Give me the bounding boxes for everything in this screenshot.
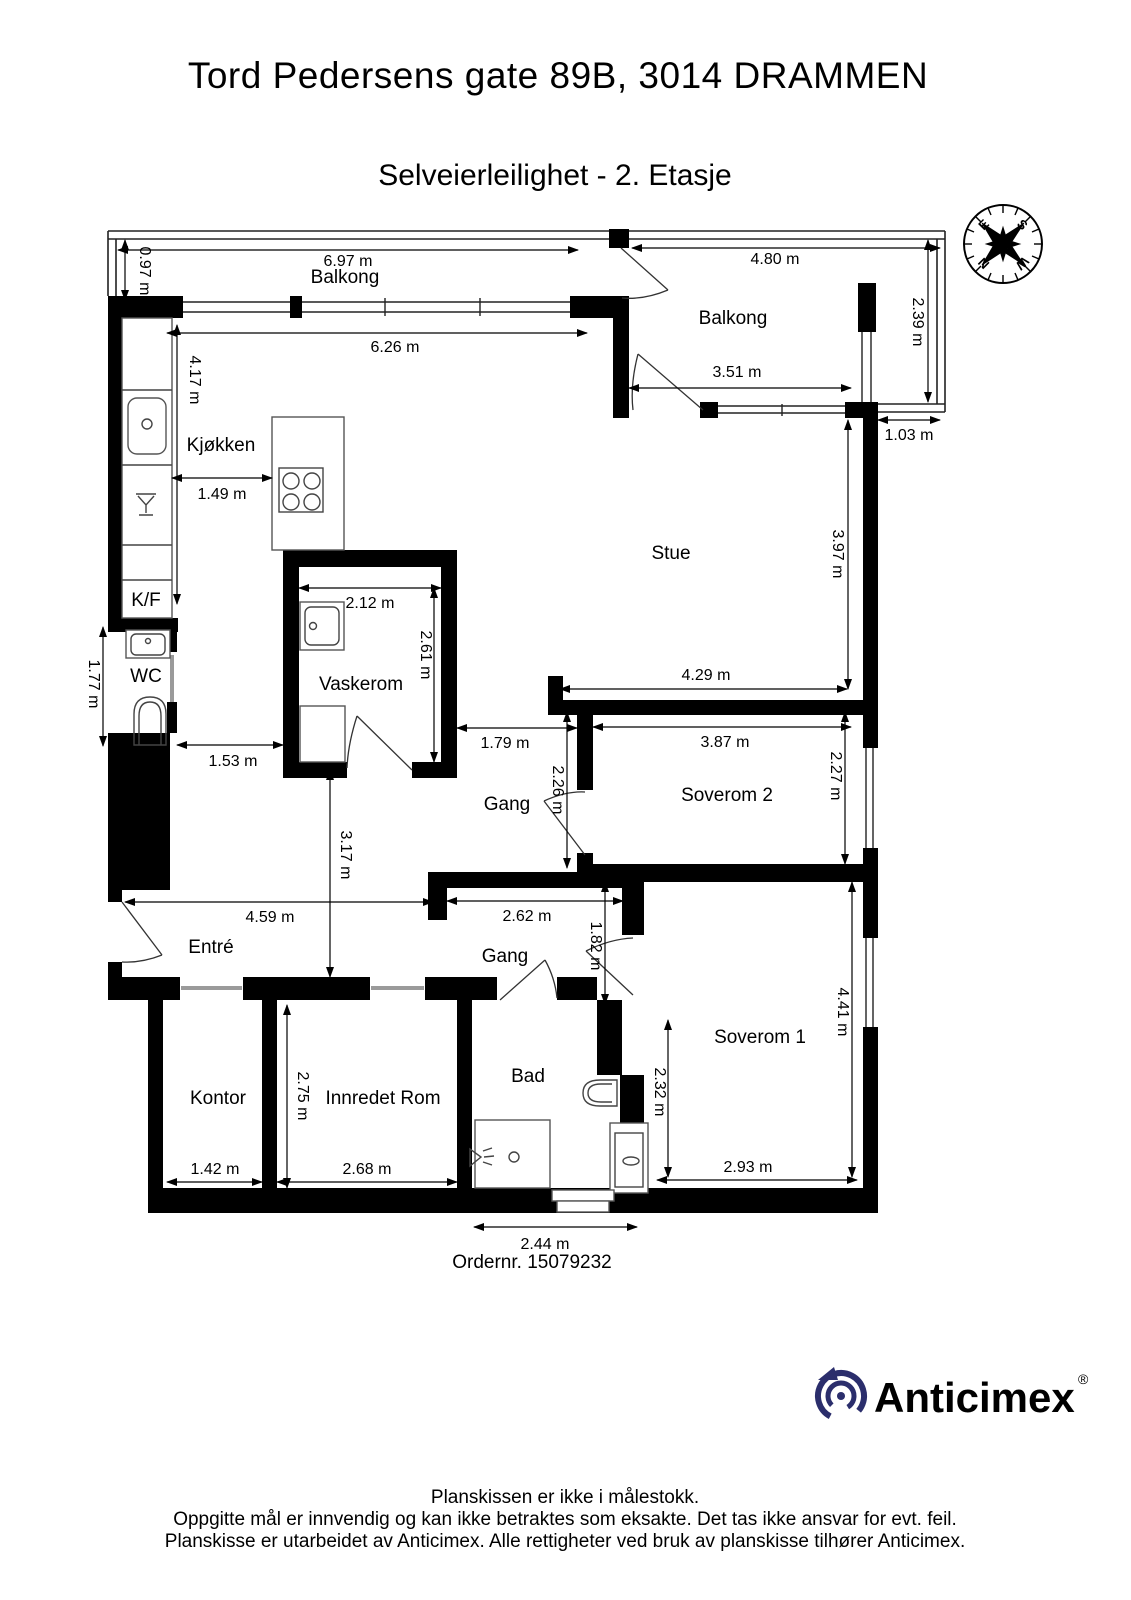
- dim-balkong-right-side: 1.03 m: [878, 420, 940, 444]
- svg-text:1.42 m: 1.42 m: [191, 1161, 240, 1178]
- wall-segment: [858, 283, 876, 332]
- svg-text:2.26 m: 2.26 m: [549, 766, 566, 815]
- room-label-entre: Entré: [188, 937, 233, 958]
- svg-text:2.62 m: 2.62 m: [503, 908, 552, 925]
- svg-text:2.27 m: 2.27 m: [827, 752, 844, 801]
- wall-segment: [622, 882, 644, 935]
- svg-text:2.12 m: 2.12 m: [346, 595, 395, 612]
- wall-segment: [290, 296, 302, 318]
- room-label-gang1: Gang: [484, 794, 530, 815]
- dim-innredet-height: 2.75 m: [287, 1005, 311, 1188]
- wall-segment: [243, 977, 370, 1000]
- room-label-stue: Stue: [651, 543, 690, 564]
- room-label-kontor: Kontor: [190, 1088, 247, 1109]
- dim-vaskerom-height: 2.61 m: [417, 588, 434, 762]
- compass-icon: E S W N: [964, 205, 1042, 283]
- washing-machine-icon: [300, 706, 345, 762]
- svg-text:4.17 m: 4.17 m: [186, 356, 203, 405]
- footer-line2: Oppgitte mål er innvendig og kan ikke be…: [173, 1509, 957, 1530]
- svg-text:2.68 m: 2.68 m: [343, 1161, 392, 1178]
- wall-segment: [593, 864, 863, 882]
- floorplan-page: Tord Pedersens gate 89B, 3014 DRAMMEN Se…: [0, 0, 1131, 1600]
- wall-segment: [863, 1027, 878, 1190]
- wall-segment: [557, 977, 597, 1000]
- svg-text:4.41 m: 4.41 m: [834, 988, 851, 1037]
- svg-text:4.29 m: 4.29 m: [682, 667, 731, 684]
- wall-segment: [613, 296, 629, 418]
- registered-mark: ®: [1078, 1371, 1089, 1387]
- svg-text:1.77 m: 1.77 m: [85, 660, 102, 709]
- svg-text:1.79 m: 1.79 m: [481, 735, 530, 752]
- svg-text:1.03 m: 1.03 m: [885, 427, 934, 444]
- dim-balkong-left-depth: 0.97 m: [125, 240, 153, 300]
- svg-text:4.80 m: 4.80 m: [751, 251, 800, 268]
- wall-segment: [570, 296, 616, 318]
- entrance-step: [552, 1190, 614, 1201]
- dim-stue-width: 4.29 m: [560, 667, 847, 689]
- svg-text:3.87 m: 3.87 m: [701, 734, 750, 751]
- wall-segment: [283, 550, 457, 567]
- dim-wc-height: 1.77 m: [85, 627, 103, 746]
- room-label-vaskerom: Vaskerom: [319, 674, 403, 695]
- wall-segment: [108, 296, 122, 618]
- wall-segment: [863, 402, 878, 748]
- order-number: Ordernr. 15079232: [452, 1252, 612, 1273]
- room-label-balkong-right: Balkong: [699, 308, 768, 329]
- wall-segment: [283, 762, 347, 778]
- wall-segment: [441, 550, 457, 763]
- shower-icon: [475, 1120, 550, 1188]
- balcony-divider-door: [621, 248, 668, 298]
- wall-segment: [108, 890, 122, 902]
- entrance-step: [557, 1201, 609, 1212]
- svg-text:2.75 m: 2.75 m: [294, 1072, 311, 1121]
- room-label-innredet-rom: Innredet Rom: [325, 1088, 440, 1109]
- room-label-kf: K/F: [131, 590, 161, 611]
- dim-innredet-width: 2.68 m: [277, 1161, 457, 1182]
- page-title: Tord Pedersens gate 89B, 3014 DRAMMEN: [188, 55, 928, 96]
- wall-segment: [262, 1000, 277, 1188]
- svg-text:3.97 m: 3.97 m: [829, 530, 846, 579]
- page-subtitle: Selveierleilighet - 2. Etasje: [378, 159, 732, 192]
- wall-segment: [447, 977, 497, 1000]
- wall-segment: [548, 700, 878, 715]
- svg-text:3.51 m: 3.51 m: [713, 364, 762, 381]
- wall-segment: [148, 1188, 878, 1213]
- dim-soverom2-width: 3.87 m: [593, 727, 851, 751]
- dim-soverom1-width: 2.93 m: [657, 1159, 857, 1180]
- wall-segment: [548, 676, 563, 700]
- dim-wc-gap: 1.53 m: [177, 745, 283, 770]
- svg-text:2.39 m: 2.39 m: [909, 298, 926, 347]
- room-label-balkong-left: Balkong: [311, 267, 380, 288]
- dim-gang1-height: 2.26 m: [549, 712, 567, 868]
- svg-text:1.82 m: 1.82 m: [587, 922, 604, 971]
- room-label-bad: Bad: [511, 1066, 545, 1087]
- dim-soverom2-height: 2.27 m: [827, 712, 845, 864]
- balcony-stue-door: [632, 354, 703, 410]
- dim-soverom1-inner-height: 2.32 m: [651, 1020, 668, 1177]
- balcony-railings: [108, 231, 945, 412]
- wall-segment: [108, 733, 170, 890]
- wall-segment: [425, 977, 447, 1000]
- dim-balkong-right-depth: 2.39 m: [909, 240, 928, 402]
- wall-segment: [108, 962, 122, 977]
- anticimex-logo: Anticimex ®: [810, 1365, 1089, 1427]
- room-label-soverom1: Soverom 1: [714, 1027, 806, 1048]
- dim-stue-height: 3.97 m: [829, 420, 848, 689]
- dim-balkong-right-width: 4.80 m: [632, 248, 940, 268]
- room-label-soverom2: Soverom 2: [681, 785, 773, 806]
- room-label-wc: WC: [130, 666, 162, 687]
- bad-toilet-icon: [583, 1080, 617, 1106]
- anticimex-wordmark: Anticimex: [874, 1374, 1075, 1421]
- dim-kjokken-height: 4.17 m: [177, 325, 203, 604]
- kitchen-counter: [122, 318, 172, 618]
- vaskerom-door: [347, 716, 412, 770]
- wall-segment: [283, 550, 299, 778]
- dim-bad-width: 2.44 m: [474, 1227, 637, 1253]
- room-label-kjokken: Kjøkken: [187, 435, 256, 456]
- wall-segment: [108, 977, 180, 1000]
- entry-door: [122, 902, 162, 962]
- wall-segment: [597, 1000, 622, 1075]
- wall-segment: [577, 853, 593, 872]
- svg-text:3.17 m: 3.17 m: [337, 831, 354, 880]
- dim-island-gap: 1.49 m: [172, 478, 272, 503]
- dim-gang1-width: 1.79 m: [457, 728, 577, 752]
- dim-balkong-right-inner: 3.51 m: [629, 364, 851, 388]
- dim-soverom1-height: 4.41 m: [834, 882, 852, 1177]
- footer-line1: Planskissen er ikke i målestokk.: [431, 1487, 699, 1508]
- wall-segment: [412, 762, 457, 778]
- svg-text:1.53 m: 1.53 m: [209, 753, 258, 770]
- svg-text:0.97 m: 0.97 m: [136, 247, 153, 296]
- svg-text:1.49 m: 1.49 m: [198, 486, 247, 503]
- wall-segment: [620, 1075, 644, 1123]
- svg-text:2.61 m: 2.61 m: [417, 631, 434, 680]
- wall-segment: [577, 712, 593, 790]
- wall-segment: [609, 229, 629, 248]
- svg-text:4.59 m: 4.59 m: [246, 909, 295, 926]
- dim-entre-width: 4.59 m: [125, 902, 433, 926]
- walls: [108, 229, 878, 1213]
- footer-disclaimer: Planskissen er ikke i målestokk. Oppgitt…: [165, 1487, 965, 1552]
- wall-segment: [863, 848, 878, 938]
- svg-text:2.32 m: 2.32 m: [651, 1068, 668, 1117]
- dim-kjokken-width: 6.26 m: [167, 333, 587, 356]
- room-label-gang2: Gang: [482, 946, 528, 967]
- svg-text:6.26 m: 6.26 m: [371, 339, 420, 356]
- dim-mid-height: 3.17 m: [330, 770, 354, 977]
- wall-segment: [148, 1000, 163, 1213]
- anticimex-house-icon: [810, 1365, 872, 1427]
- svg-text:2.93 m: 2.93 m: [724, 1159, 773, 1176]
- floor-plan: Tord Pedersens gate 89B, 3014 DRAMMEN Se…: [0, 0, 1131, 1600]
- kitchen-sink-icon: [128, 398, 166, 454]
- svg-text:2.44 m: 2.44 m: [521, 1236, 570, 1253]
- footer-line3: Planskisse er utarbeidet av Anticimex. A…: [165, 1531, 965, 1552]
- wall-segment: [428, 872, 447, 920]
- dim-kontor-width: 1.42 m: [167, 1161, 262, 1182]
